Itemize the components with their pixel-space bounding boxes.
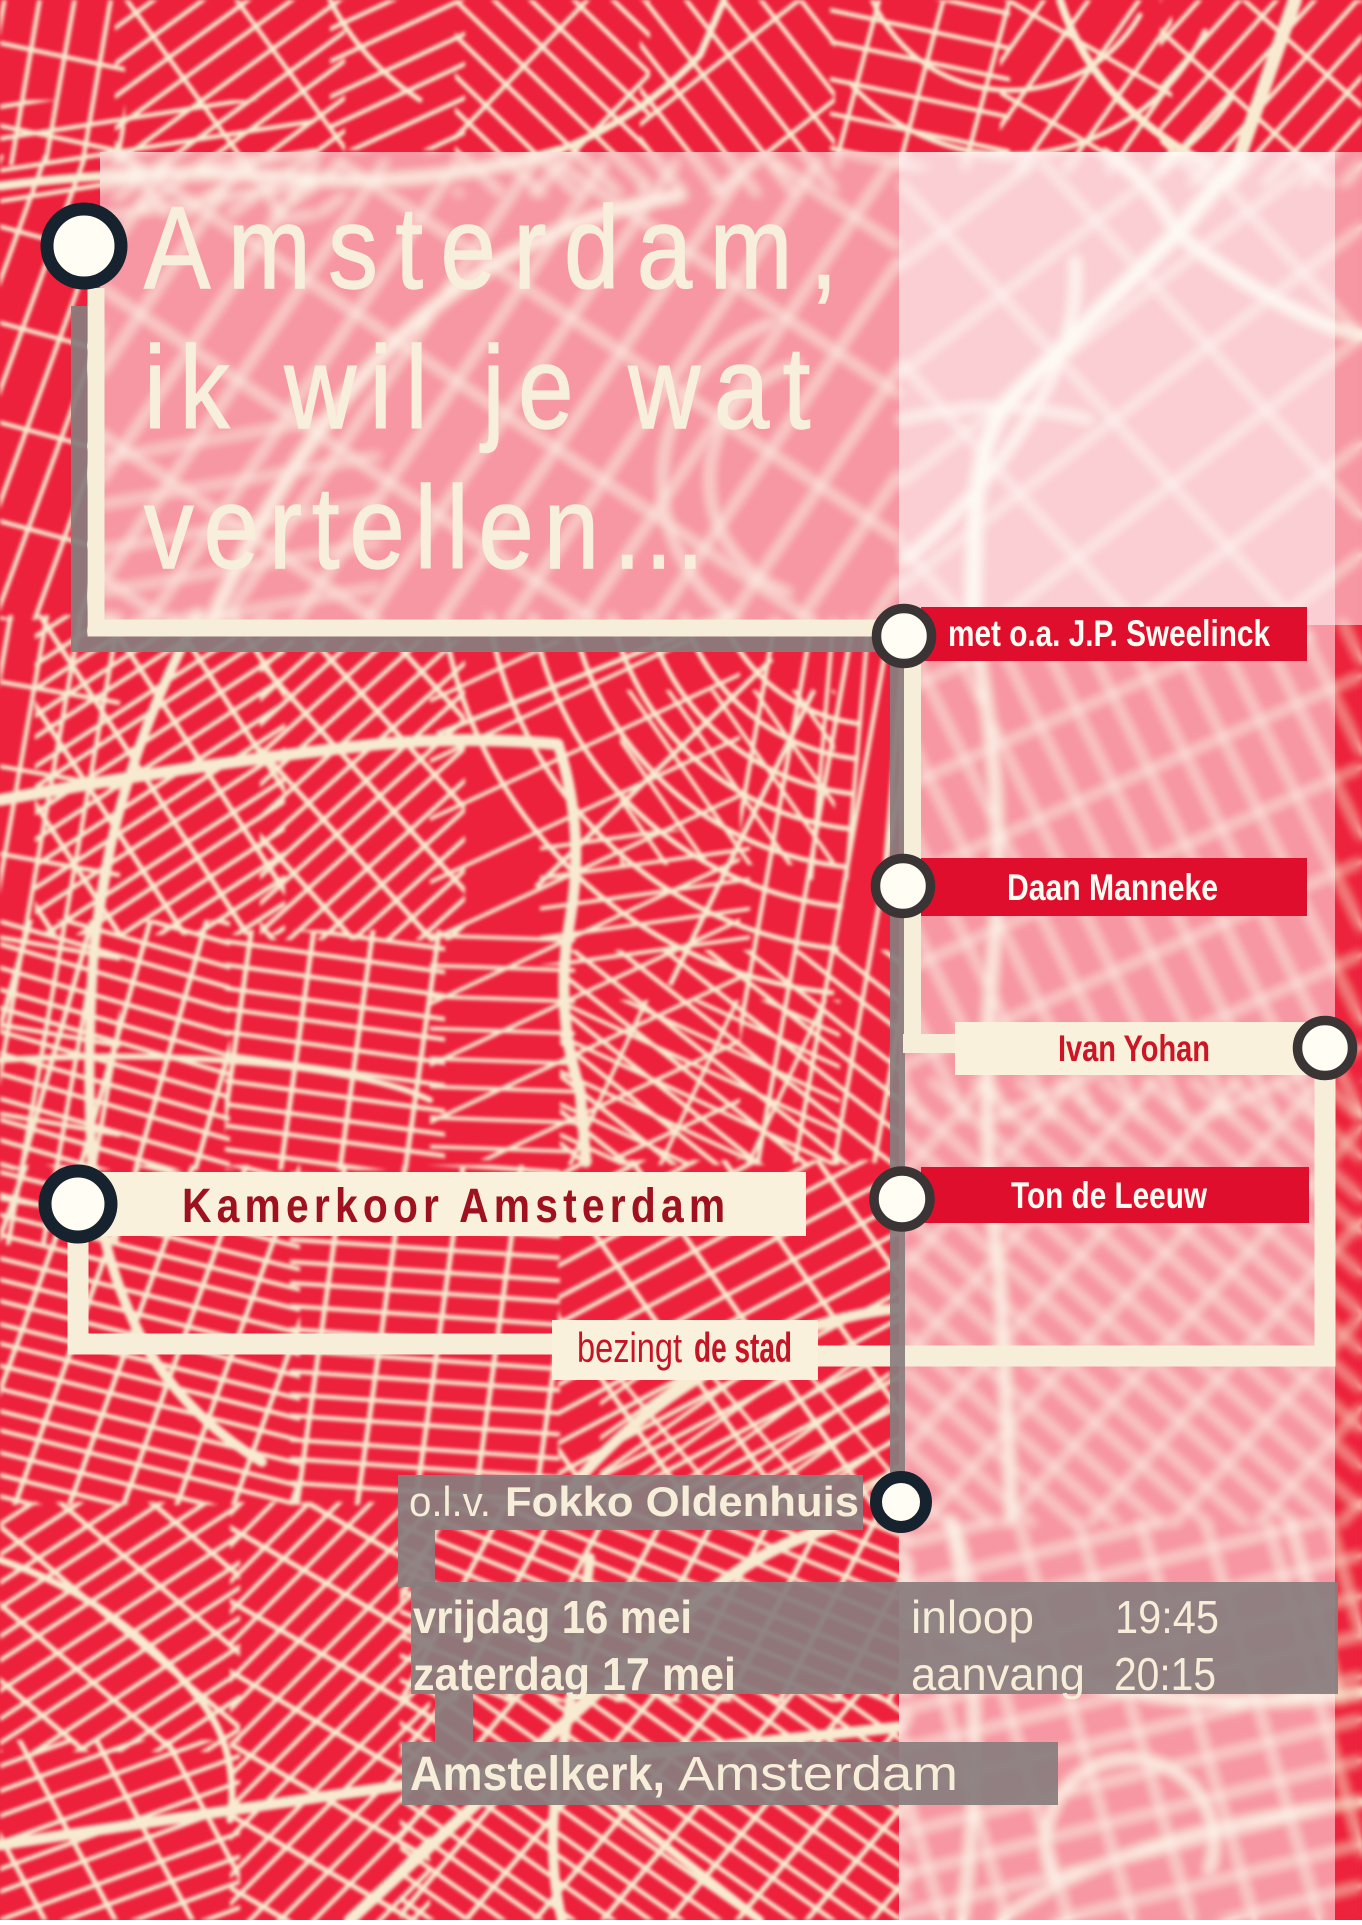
svg-text:inloop: inloop (911, 1591, 1034, 1643)
svg-text:vertellen…: vertellen… (144, 463, 708, 593)
svg-text:Ivan Yohan: Ivan Yohan (1058, 1028, 1210, 1069)
svg-text:bezingt: bezingt (577, 1324, 682, 1371)
svg-text:20:15: 20:15 (1114, 1648, 1216, 1700)
svg-text:Amsterdam: Amsterdam (678, 1748, 958, 1801)
svg-text:Fokko Oldenhuis: Fokko Oldenhuis (505, 1478, 859, 1525)
svg-text:Kamerkoor Amsterdam: Kamerkoor Amsterdam (182, 1180, 725, 1233)
svg-text:Daan Manneke: Daan Manneke (1007, 867, 1218, 908)
svg-text:Amstelkerk,: Amstelkerk, (410, 1748, 665, 1801)
svg-text:de stad: de stad (694, 1324, 792, 1371)
svg-text:19:45: 19:45 (1115, 1591, 1219, 1643)
svg-text:Ton de Leeuw: Ton de Leeuw (1011, 1175, 1207, 1216)
svg-text:Amsterdam,: Amsterdam, (144, 183, 838, 313)
svg-text:vrijdag 16 mei: vrijdag 16 mei (413, 1591, 692, 1643)
svg-text:aanvang: aanvang (911, 1648, 1085, 1700)
svg-text:zaterdag 17 mei: zaterdag 17 mei (413, 1648, 736, 1700)
svg-text:met o.a. J.P. Sweelinck: met o.a. J.P. Sweelinck (948, 613, 1270, 654)
svg-text:o.l.v.: o.l.v. (409, 1478, 491, 1525)
